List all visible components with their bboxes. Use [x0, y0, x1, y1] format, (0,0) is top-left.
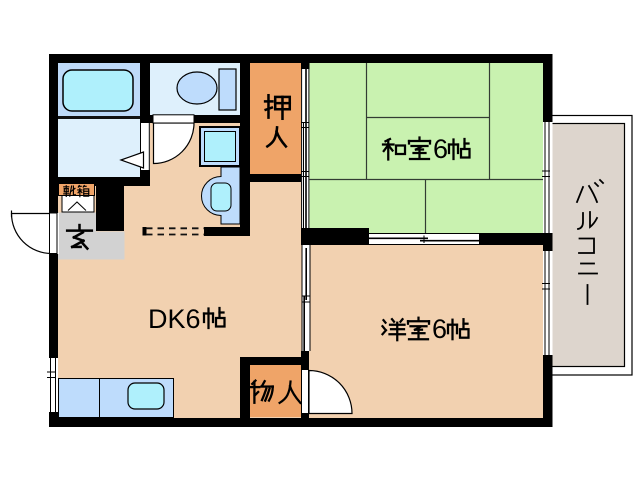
svg-text:DK6: DK6 — [148, 304, 201, 334]
svg-text:6: 6 — [432, 314, 447, 344]
svg-text:6: 6 — [433, 134, 448, 164]
